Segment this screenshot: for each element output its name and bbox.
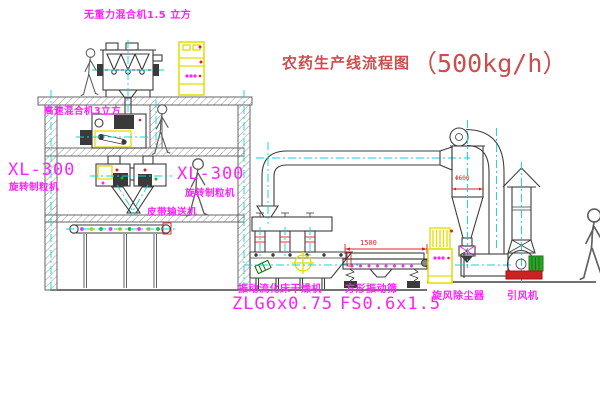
- fluid-bed-dryer-drawing: [244, 213, 358, 289]
- title-text: 农药生产线流程图: [282, 52, 410, 73]
- induced-draft-fan-drawing: [506, 251, 543, 280]
- label-high-speed-mixer: 高速混合机3立方: [44, 107, 121, 117]
- label-gravity-free-mixer: 无重力混合机1.5 立方: [84, 11, 191, 21]
- label-fan: 引风机: [507, 292, 539, 302]
- label-granulator-left-model: XL-300: [8, 162, 75, 179]
- label-granulator-left-name: 旋转制粒机: [9, 183, 59, 193]
- label-granulator-mid-name: 旋转制粒机: [185, 189, 235, 199]
- label-granulator-mid-model: XL-300: [177, 166, 244, 183]
- label-sieve-model: FS0.6x1.5: [340, 296, 441, 313]
- dimension-sieve-length: 1500: [360, 240, 377, 247]
- label-cyclone: 旋风除尘器: [432, 292, 485, 302]
- control-cabinet-1: [179, 42, 204, 95]
- exhaust-duct: [256, 142, 470, 224]
- dimension-cyclone-diameter: Φ600: [455, 176, 469, 182]
- ground-lines: [50, 282, 596, 290]
- roof-slab: [38, 97, 252, 105]
- worker-roof: [81, 49, 98, 96]
- square-sieve-drawing: [343, 244, 429, 288]
- label-belt-conveyor: 皮带输送机: [147, 208, 197, 218]
- title-capacity: （500kg/h）: [412, 44, 567, 80]
- belt-conveyor-drawing: [66, 223, 178, 288]
- floor2-slab: [45, 148, 244, 156]
- high-speed-mixer-drawing: [76, 114, 150, 148]
- drawing-title: 农药生产线流程图 （500kg/h）: [282, 44, 567, 80]
- worker-right: [580, 209, 600, 279]
- process-flow-drawing-page: 农药生产线流程图 （500kg/h） 无重力混合机1.5 立方 高速混合机3立方…: [0, 0, 600, 403]
- floor3-slab: [45, 215, 244, 222]
- control-cabinet-2: [428, 228, 453, 283]
- granulator-drawing: [90, 156, 172, 186]
- label-dryer-model: ZLG6x0.75: [232, 296, 333, 313]
